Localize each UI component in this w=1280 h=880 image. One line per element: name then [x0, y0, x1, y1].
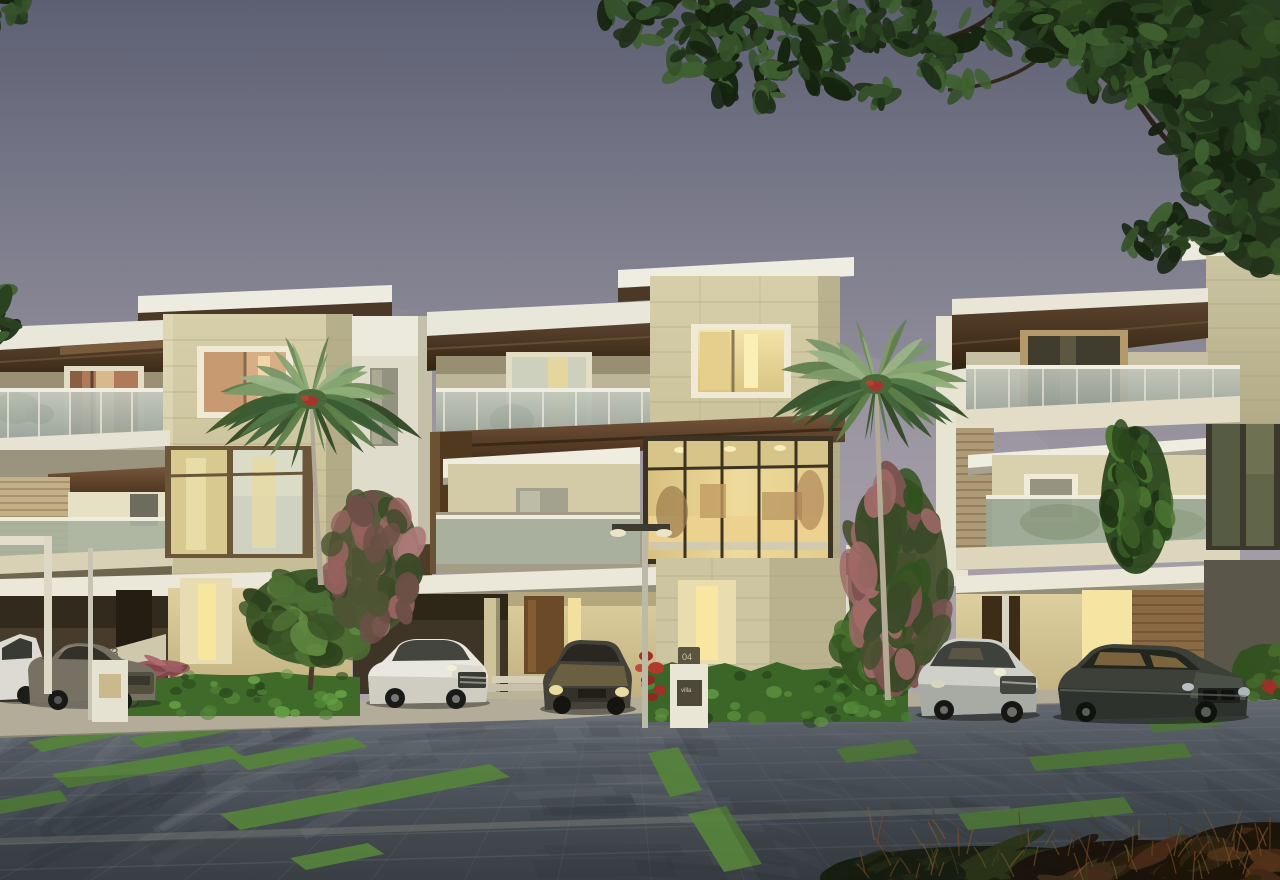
svg-text:villa: villa: [681, 688, 692, 694]
svg-text:04: 04: [682, 652, 692, 662]
